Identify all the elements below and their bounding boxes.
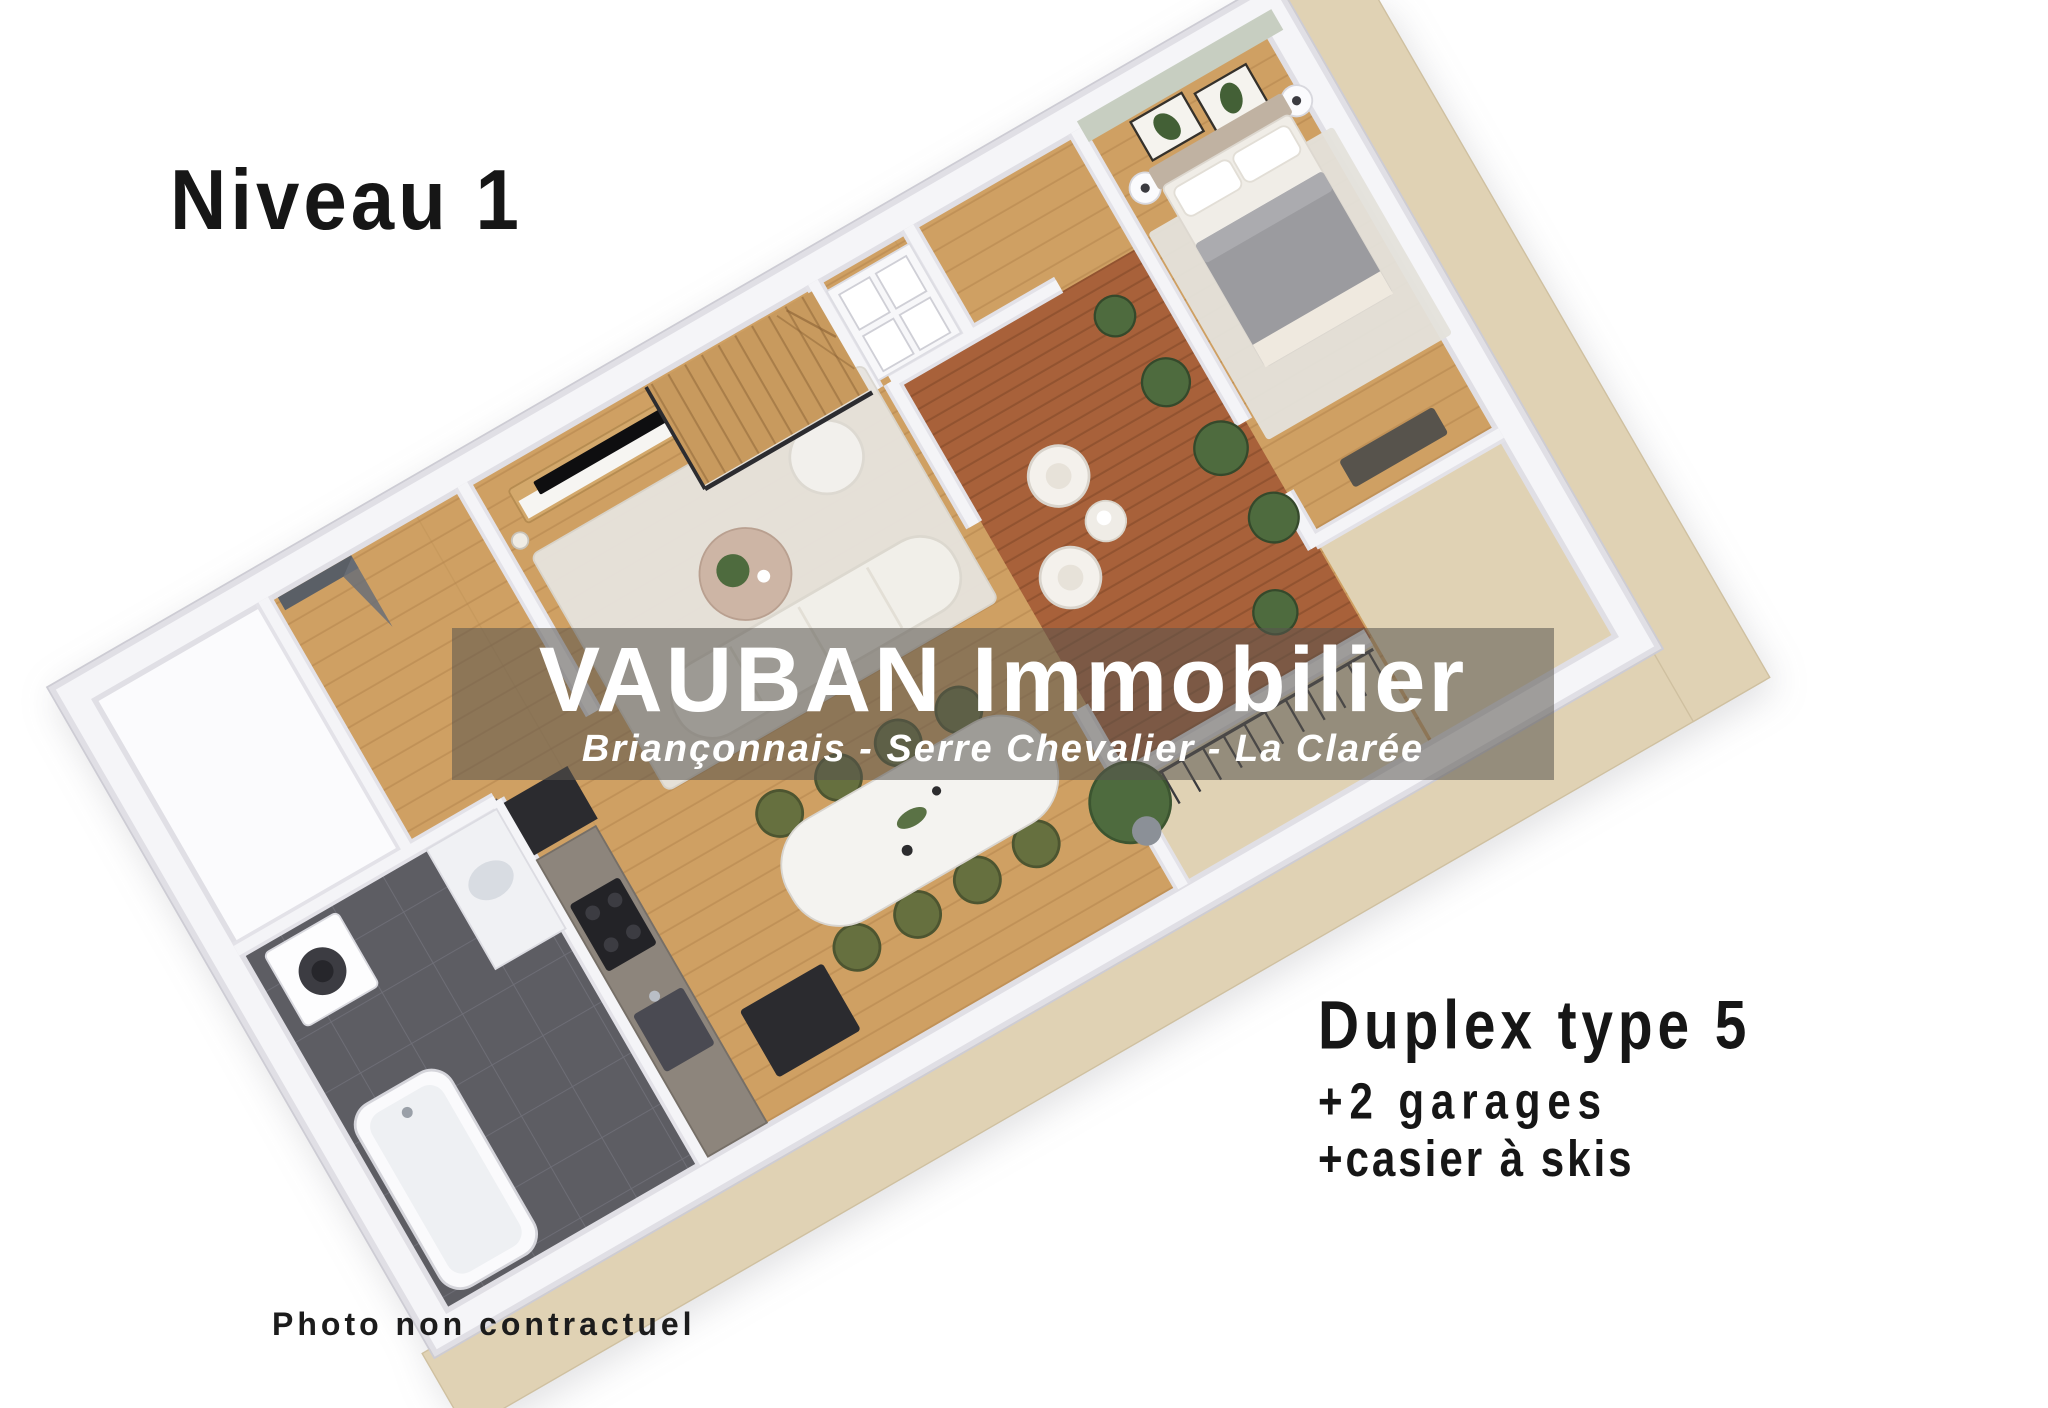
unit-extra-garages: +2 garages: [1318, 1077, 1751, 1128]
watermark-subtitle: Briançonnais - Serre Chevalier - La Clar…: [582, 728, 1424, 771]
unit-description: Duplex type 5 +2 garages +casier à skis: [1318, 992, 1751, 1186]
unit-extra-ski-locker: +casier à skis: [1318, 1135, 1751, 1186]
watermark-title: VAUBAN Immobilier: [539, 637, 1468, 724]
level-label: Niveau 1: [170, 150, 523, 250]
real-estate-floorplan-page: Niveau 1 VAUBAN Immobilier Briançonnais …: [0, 0, 2048, 1408]
disclaimer: Photo non contractuel: [272, 1306, 696, 1343]
unit-title: Duplex type 5: [1318, 992, 1751, 1060]
watermark-banner: VAUBAN Immobilier Briançonnais - Serre C…: [452, 628, 1554, 780]
